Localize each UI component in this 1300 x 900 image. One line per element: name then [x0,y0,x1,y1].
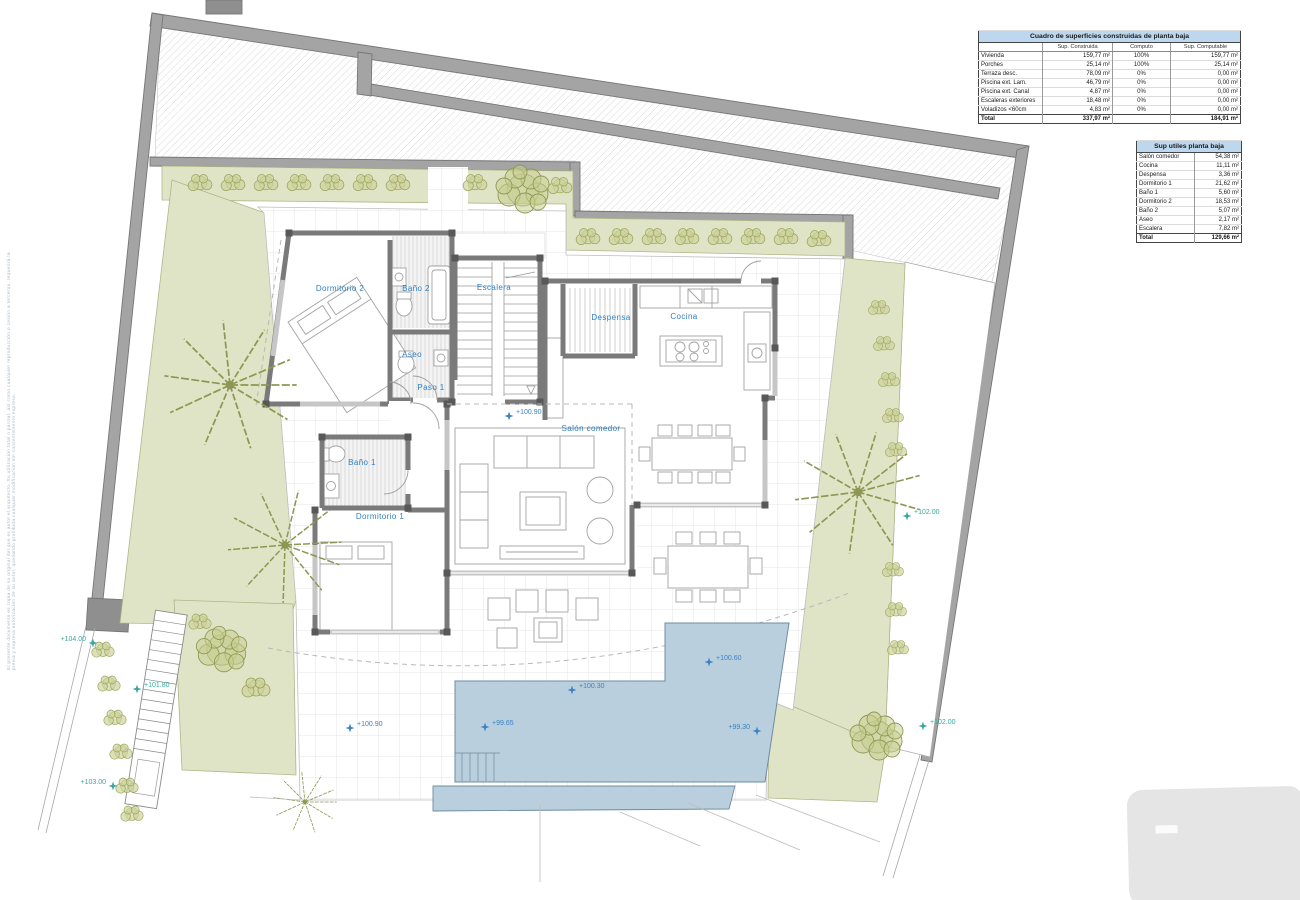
exterior-stairs [125,610,187,809]
watermark-mark [1155,825,1177,834]
svg-text:+101.80: +101.80 [144,682,170,689]
pool-channel [433,786,735,811]
table-row: Vivienda159,77 m²100%159,77 m² [979,52,1241,61]
table-title-row: Cuadro de superficies construidas de pla… [979,31,1241,43]
table-row: Despensa3,36 m² [1137,171,1242,180]
table-row: Escalera7,82 m² [1137,225,1242,234]
svg-text:+100.60: +100.60 [716,655,742,662]
table-title: Cuadro de superficies construidas de pla… [979,31,1241,43]
table-row: Salón comedor54,38 m² [1137,153,1242,162]
table-total-row: Total129,66 m² [1137,234,1242,243]
room-label-cocina: Cocina [670,312,697,321]
room-label-dormitorio1: Dormitorio 1 [356,512,405,521]
svg-text:+102.00: +102.00 [930,719,956,726]
copyright-disclaimer: El presente documento es copia de su ori… [6,240,18,670]
svg-text:+99.30: +99.30 [728,724,750,731]
table-row: Dormitorio 121,62 m² [1137,180,1242,189]
svg-text:+102.00: +102.00 [914,509,940,516]
table-row: Terraza desc.78,09 m²0%0,00 m² [979,70,1241,79]
svg-text:+100.90: +100.90 [516,409,542,416]
table-title-row: Sup utiles planta baja [1137,141,1242,153]
floorplan-sheet: Dormitorio 2 Baño 2 Escalera Aseo Paso 1… [0,0,1300,900]
table-row: Aseo2,17 m² [1137,216,1242,225]
room-label-despensa: Despensa [591,313,630,322]
level-marker: +103.00 [81,779,118,791]
level-marker: +104.00 [61,636,98,648]
table-row: Baño 15,60 m² [1137,189,1242,198]
room-label-aseo: Aseo [402,350,422,359]
table-total-row: Total337,97 m²184,91 m² [979,115,1241,124]
built-surfaces-table: Cuadro de superficies construidas de pla… [978,30,1241,124]
table-row: Voladizos <60cm4,83 m²0%0,00 m² [979,106,1241,115]
table-row: Piscina ext. Canal4,87 m²0%0,00 m² [979,88,1241,97]
site-plan: Dormitorio 2 Baño 2 Escalera Aseo Paso 1… [0,0,1300,900]
bed-dorm1 [320,542,392,634]
svg-text:+103.00: +103.00 [81,779,107,786]
svg-text:+100.30: +100.30 [579,683,605,690]
col-sup-construida: Sup. Construida [1043,43,1113,52]
col-computo: Computo [1113,43,1171,52]
table-row: Dormitorio 218,53 m² [1137,198,1242,207]
room-label-paso1: Paso 1 [417,383,444,392]
table-row: Escaleras exteriores18,48 m²0%0,00 m² [979,97,1241,106]
table-row: Cocina11,11 m² [1137,162,1242,171]
table-row: Baño 25,07 m² [1137,207,1242,216]
svg-text:+104.00: +104.00 [61,636,87,643]
table-row: Piscina ext. Lam.46,79 m²0%0,00 m² [979,79,1241,88]
watermark-blob [1126,786,1300,900]
svg-text:+100.90: +100.90 [357,721,383,728]
room-label-salon: Salón comedor [561,424,620,433]
room-label-dormitorio2: Dormitorio 2 [316,284,365,293]
useful-surfaces-table: Sup utiles planta baja Salón comedor54,3… [1136,140,1242,243]
room-label-bano2: Baño 2 [402,284,430,293]
room-label-bano1: Baño 1 [348,458,376,467]
svg-text:+99.65: +99.65 [492,720,514,727]
table-row: Porches25,14 m²100%25,14 m² [979,61,1241,70]
col-sup-computable: Sup. Computable [1171,43,1241,52]
table-header-row: Sup. Construida Computo Sup. Computable [979,43,1241,52]
table-title: Sup utiles planta baja [1137,141,1242,153]
room-label-escalera: Escalera [477,283,511,292]
